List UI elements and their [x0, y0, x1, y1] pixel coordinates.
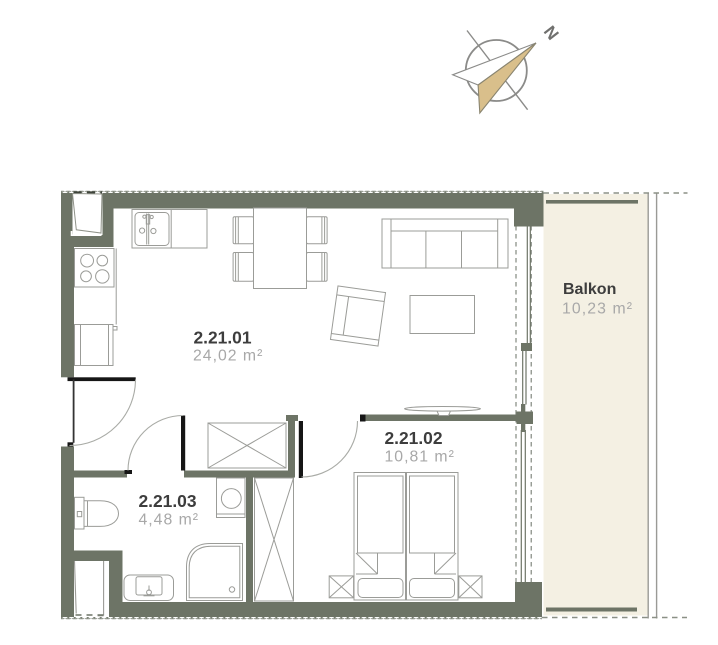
svg-text:2.21.02: 2.21.02 — [385, 428, 443, 448]
svg-text:10,81 m²: 10,81 m² — [385, 449, 455, 466]
svg-text:24,02 m²: 24,02 m² — [193, 348, 263, 365]
svg-text:2.21.03: 2.21.03 — [139, 491, 197, 511]
svg-text:4,48 m²: 4,48 m² — [139, 511, 200, 528]
svg-text:2.21.01: 2.21.01 — [194, 328, 252, 348]
svg-text:10,23 m²: 10,23 m² — [562, 301, 633, 318]
svg-text:Balkon: Balkon — [563, 281, 616, 298]
